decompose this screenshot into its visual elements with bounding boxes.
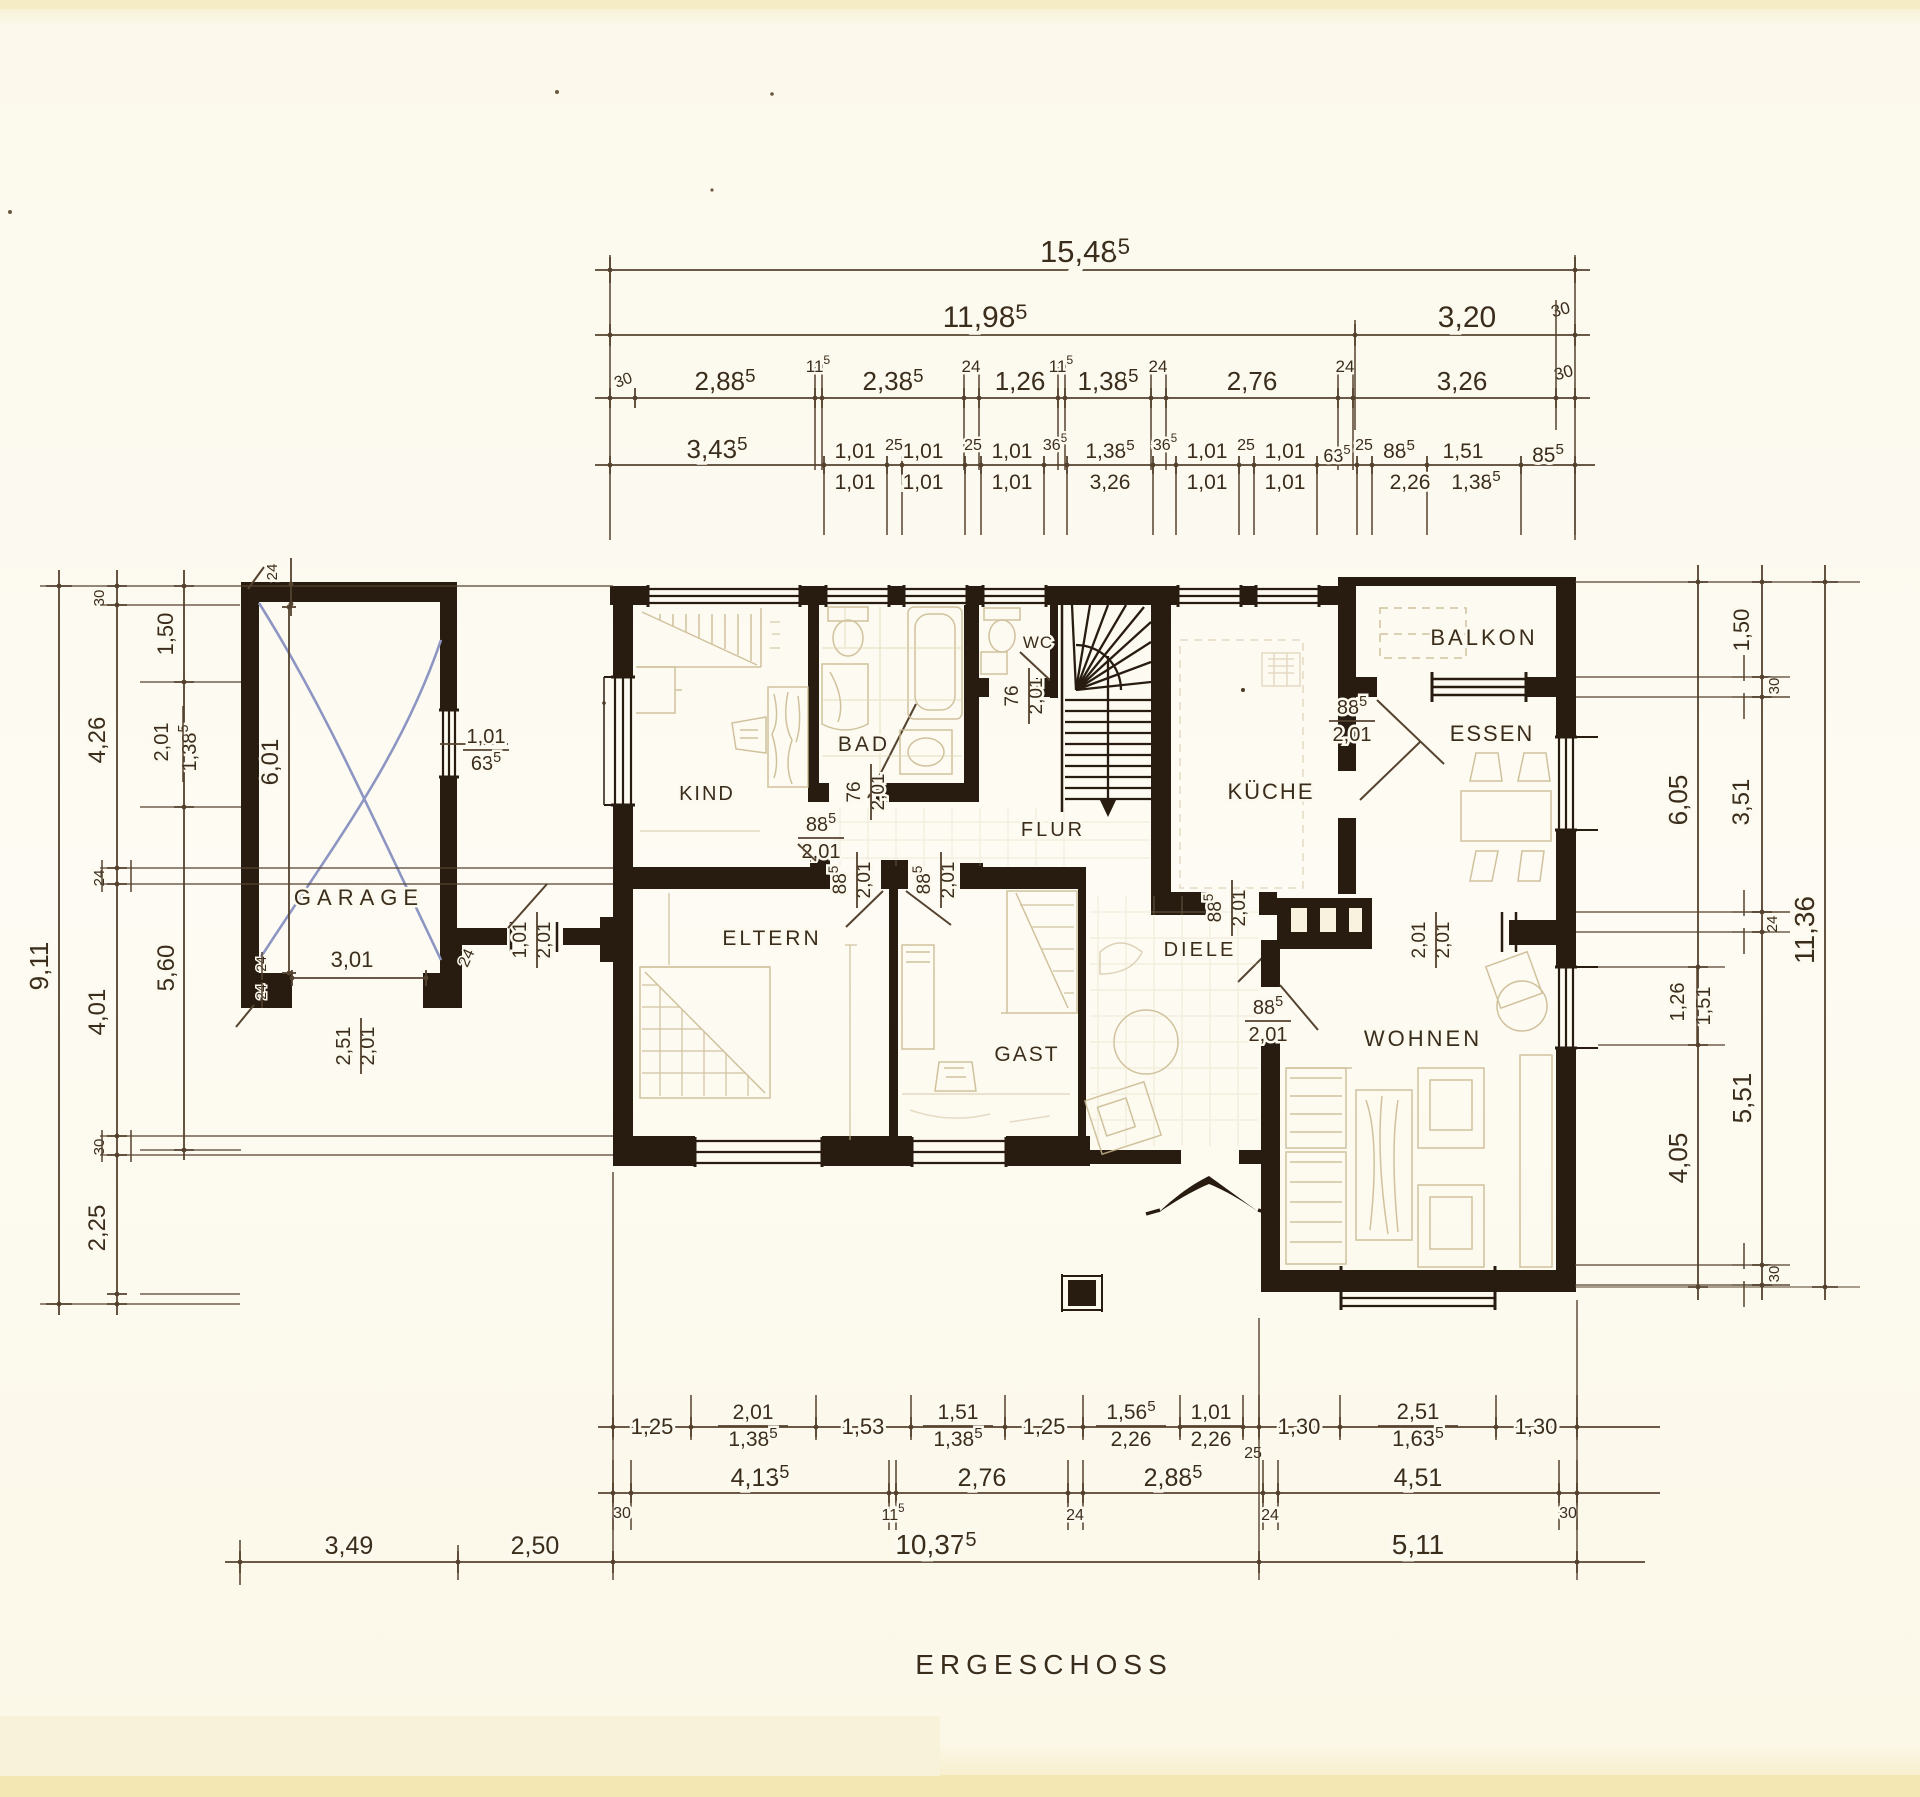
svg-text:1,51: 1,51: [1443, 440, 1484, 463]
svg-text:1,01: 1,01: [835, 471, 876, 494]
svg-text:KIND: KIND: [679, 783, 735, 805]
svg-text:1,01: 1,01: [1265, 471, 1306, 494]
svg-text:1,01: 1,01: [835, 440, 876, 463]
svg-text:2,01: 2,01: [151, 723, 173, 762]
svg-text:24: 24: [962, 357, 981, 376]
svg-text:3,01: 3,01: [331, 947, 374, 972]
svg-text:BAD: BAD: [838, 733, 890, 756]
svg-text:11,985: 11,985: [943, 299, 1028, 334]
svg-text:24: 24: [253, 956, 269, 972]
svg-text:ELTERN: ELTERN: [722, 927, 821, 950]
svg-text:1,25: 1,25: [631, 1414, 674, 1439]
svg-text:3,49: 3,49: [325, 1532, 374, 1560]
svg-text:24: 24: [1066, 1507, 1084, 1524]
svg-text:ESSEN: ESSEN: [1450, 721, 1535, 746]
svg-text:BALKON: BALKON: [1430, 625, 1537, 650]
svg-text:2,26: 2,26: [1390, 471, 1431, 494]
svg-text:2,01: 2,01: [733, 1401, 774, 1424]
svg-text:24: 24: [1336, 357, 1355, 376]
svg-text:1,26: 1,26: [1667, 983, 1689, 1022]
svg-text:4,51: 4,51: [1394, 1464, 1443, 1492]
svg-text:2,25: 2,25: [84, 1205, 111, 1252]
svg-text:30: 30: [91, 590, 108, 607]
svg-text:1,50: 1,50: [1729, 609, 1754, 652]
svg-text:1,26: 1,26: [995, 366, 1046, 396]
svg-text:1,01: 1,01: [510, 922, 531, 959]
svg-text:30: 30: [613, 1505, 631, 1522]
svg-text:2,76: 2,76: [1227, 366, 1278, 396]
svg-text:10,375: 10,375: [895, 1529, 976, 1560]
svg-text:30: 30: [91, 1139, 108, 1156]
svg-text:6,01: 6,01: [257, 739, 284, 786]
svg-text:GAST: GAST: [994, 1043, 1059, 1066]
svg-text:2,01: 2,01: [1333, 724, 1372, 746]
svg-text:3,26: 3,26: [1437, 366, 1488, 396]
svg-text:5,11: 5,11: [1392, 1529, 1444, 1560]
svg-text:25: 25: [1237, 437, 1255, 454]
svg-text:15,485: 15,485: [1040, 234, 1130, 269]
svg-text:9,11: 9,11: [24, 942, 54, 991]
svg-text:1,01: 1,01: [903, 471, 944, 494]
svg-text:WOHNEN: WOHNEN: [1364, 1026, 1482, 1051]
svg-text:30: 30: [1766, 678, 1783, 695]
svg-text:WC: WC: [1023, 633, 1053, 652]
svg-text:DIELE: DIELE: [1164, 939, 1237, 961]
svg-text:2,51: 2,51: [1397, 1399, 1440, 1424]
svg-text:1,30: 1,30: [1515, 1414, 1558, 1439]
svg-text:76: 76: [1002, 685, 1023, 706]
svg-text:KÜCHE: KÜCHE: [1227, 779, 1314, 804]
svg-text:5,60: 5,60: [153, 945, 180, 992]
svg-text:GARAGE: GARAGE: [294, 885, 424, 910]
svg-text:24: 24: [1764, 916, 1781, 933]
svg-text:1,01: 1,01: [992, 440, 1033, 463]
svg-text:4,01: 4,01: [84, 989, 111, 1036]
svg-text:1,01: 1,01: [992, 471, 1033, 494]
svg-text:25: 25: [885, 437, 903, 454]
svg-text:76: 76: [844, 781, 865, 802]
svg-text:24: 24: [253, 984, 269, 1000]
svg-text:30: 30: [1559, 1505, 1577, 1522]
svg-text:FLUR: FLUR: [1021, 819, 1085, 841]
svg-text:1,01: 1,01: [1265, 440, 1306, 463]
svg-text:30: 30: [1766, 1266, 1783, 1283]
svg-text:25: 25: [1355, 437, 1373, 454]
svg-text:1,01: 1,01: [1187, 471, 1228, 494]
svg-text:4,26: 4,26: [84, 717, 111, 764]
svg-text:3,26: 3,26: [1090, 471, 1131, 494]
svg-text:2,51: 2,51: [333, 1027, 355, 1066]
svg-text:2,26: 2,26: [1191, 1428, 1232, 1451]
svg-text:2,01: 2,01: [1409, 922, 1430, 959]
svg-text:3,51: 3,51: [1728, 779, 1755, 826]
svg-text:2,76: 2,76: [958, 1464, 1007, 1492]
svg-text:6,05: 6,05: [1663, 775, 1693, 826]
svg-text:3,20: 3,20: [1438, 301, 1496, 334]
svg-text:ERGESCHOSS: ERGESCHOSS: [915, 1649, 1173, 1680]
svg-text:2,01: 2,01: [1249, 1024, 1288, 1046]
svg-text:1,51: 1,51: [938, 1401, 979, 1424]
svg-text:1,50: 1,50: [153, 613, 178, 656]
svg-text:11,36: 11,36: [1789, 896, 1820, 964]
svg-text:4,05: 4,05: [1663, 1133, 1693, 1184]
svg-text:1,01: 1,01: [1191, 1401, 1232, 1424]
svg-text:1,30: 1,30: [1278, 1414, 1321, 1439]
svg-text:24: 24: [1261, 1507, 1279, 1524]
svg-text:24: 24: [264, 564, 281, 581]
svg-text:24: 24: [1149, 357, 1168, 376]
svg-text:25: 25: [964, 437, 982, 454]
svg-text:1,53: 1,53: [842, 1414, 885, 1439]
svg-text:1,01: 1,01: [1187, 440, 1228, 463]
svg-text:2,26: 2,26: [1111, 1428, 1152, 1451]
svg-text:5,51: 5,51: [1727, 1073, 1757, 1124]
svg-text:1,25: 1,25: [1023, 1414, 1066, 1439]
svg-text:1,01: 1,01: [467, 726, 506, 748]
svg-text:2,50: 2,50: [511, 1532, 560, 1560]
svg-text:1,01: 1,01: [903, 440, 944, 463]
